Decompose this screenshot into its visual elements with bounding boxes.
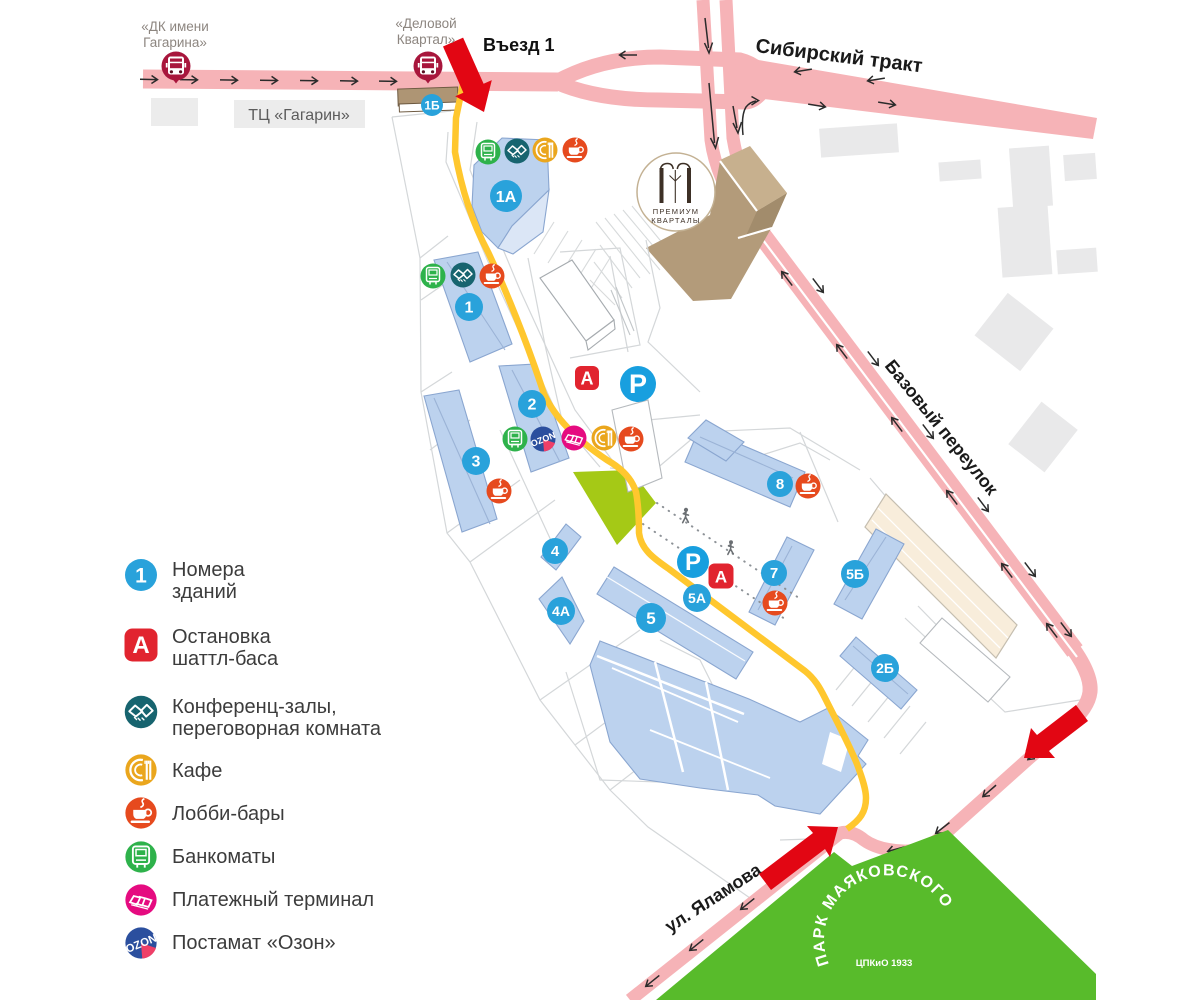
svg-text:Банкоматы: Банкоматы bbox=[172, 846, 275, 868]
svg-text:ЦПКиО 1933: ЦПКиО 1933 bbox=[856, 958, 913, 969]
svg-text:2: 2 bbox=[528, 397, 537, 414]
svg-text:Квартал»: Квартал» bbox=[397, 32, 456, 47]
svg-text:А: А bbox=[581, 369, 594, 389]
svg-text:Постамат «Озон»: Постамат «Озон» bbox=[172, 932, 336, 954]
svg-text:1А: 1А bbox=[496, 189, 517, 206]
svg-text:Конференц-залы,: Конференц-залы, bbox=[172, 696, 337, 718]
svg-text:Платежный терминал: Платежный терминал bbox=[172, 889, 374, 911]
svg-text:А: А bbox=[132, 632, 149, 659]
svg-text:Лобби-бары: Лобби-бары bbox=[172, 803, 285, 825]
svg-text:3: 3 bbox=[472, 454, 481, 471]
svg-text:Гагарина»: Гагарина» bbox=[143, 35, 207, 50]
svg-text:переговорная комната: переговорная комната bbox=[172, 718, 382, 740]
svg-text:5Б: 5Б bbox=[846, 566, 864, 582]
svg-text:4: 4 bbox=[551, 543, 560, 560]
svg-text:ТЦ «Гагарин»: ТЦ «Гагарин» bbox=[248, 107, 350, 124]
svg-text:1: 1 bbox=[465, 300, 474, 317]
svg-text:1Б: 1Б bbox=[424, 99, 440, 113]
svg-text:5А: 5А bbox=[688, 590, 706, 606]
svg-text:1: 1 bbox=[135, 565, 147, 588]
svg-text:Р: Р bbox=[685, 549, 701, 576]
svg-text:«Деловой: «Деловой bbox=[395, 16, 456, 31]
svg-text:«ДК имени: «ДК имени bbox=[141, 19, 209, 34]
svg-text:шаттл-баса: шаттл-баса bbox=[172, 648, 279, 670]
svg-text:7: 7 bbox=[770, 565, 778, 582]
svg-text:А: А bbox=[715, 568, 727, 587]
svg-text:Р: Р bbox=[629, 369, 647, 399]
svg-text:зданий: зданий bbox=[172, 581, 237, 603]
svg-text:Номера: Номера bbox=[172, 559, 246, 581]
svg-text:ПРЕМИУМ: ПРЕМИУМ bbox=[653, 207, 699, 216]
svg-text:5: 5 bbox=[646, 609, 655, 628]
svg-text:4А: 4А bbox=[552, 603, 570, 619]
svg-text:Кафе: Кафе bbox=[172, 760, 222, 782]
svg-text:КВАРТАЛЫ: КВАРТАЛЫ bbox=[651, 216, 700, 225]
svg-text:Остановка: Остановка bbox=[172, 626, 272, 648]
svg-text:8: 8 bbox=[776, 476, 784, 493]
svg-text:Въезд 1: Въезд 1 bbox=[483, 35, 555, 55]
svg-text:2Б: 2Б bbox=[876, 660, 894, 676]
